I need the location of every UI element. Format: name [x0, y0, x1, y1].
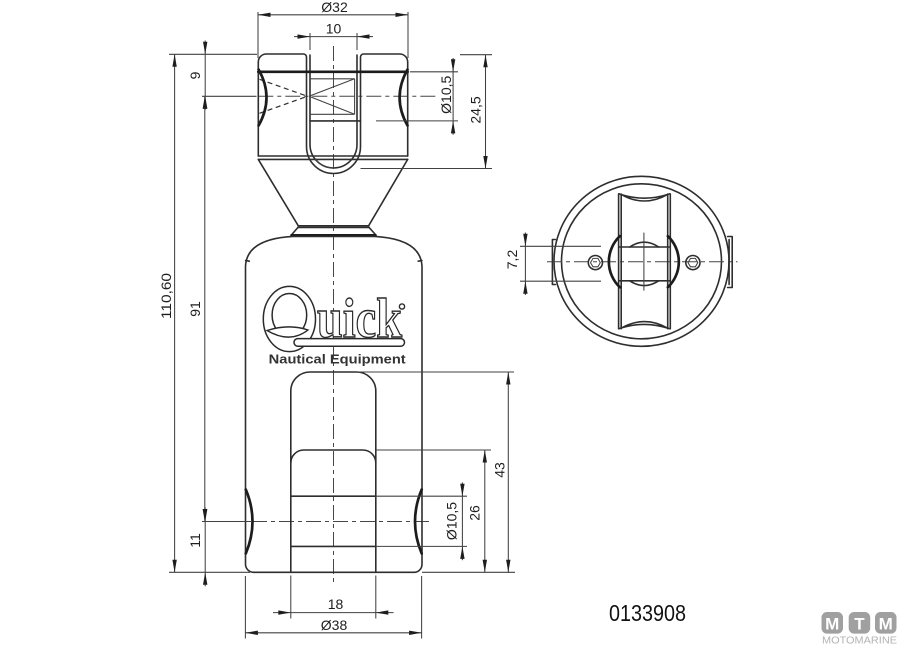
- svg-text:26: 26: [467, 505, 483, 521]
- svg-text:uick: uick: [317, 288, 403, 350]
- svg-text:Nautical Equipment: Nautical Equipment: [269, 353, 407, 367]
- svg-text:T: T: [854, 615, 865, 634]
- svg-text:Ø10,5: Ø10,5: [438, 76, 454, 114]
- svg-text:91: 91: [187, 301, 203, 317]
- svg-text:11: 11: [187, 533, 203, 548]
- svg-text:10: 10: [326, 21, 342, 37]
- svg-text:MOTOMARINE: MOTOMARINE: [822, 636, 897, 647]
- svg-text:M: M: [825, 615, 839, 634]
- svg-text:9: 9: [187, 71, 203, 79]
- svg-text:43: 43: [492, 462, 508, 478]
- svg-text:Ø10,5: Ø10,5: [444, 502, 460, 540]
- svg-text:110,60: 110,60: [158, 273, 174, 319]
- svg-text:18: 18: [328, 596, 344, 612]
- svg-text:M: M: [879, 615, 893, 634]
- svg-text:24,5: 24,5: [468, 96, 484, 123]
- svg-text:Ø38: Ø38: [321, 617, 348, 633]
- svg-text:7,2: 7,2: [504, 250, 520, 270]
- svg-text:0133908: 0133908: [609, 600, 686, 626]
- svg-text:Ø32: Ø32: [321, 0, 348, 15]
